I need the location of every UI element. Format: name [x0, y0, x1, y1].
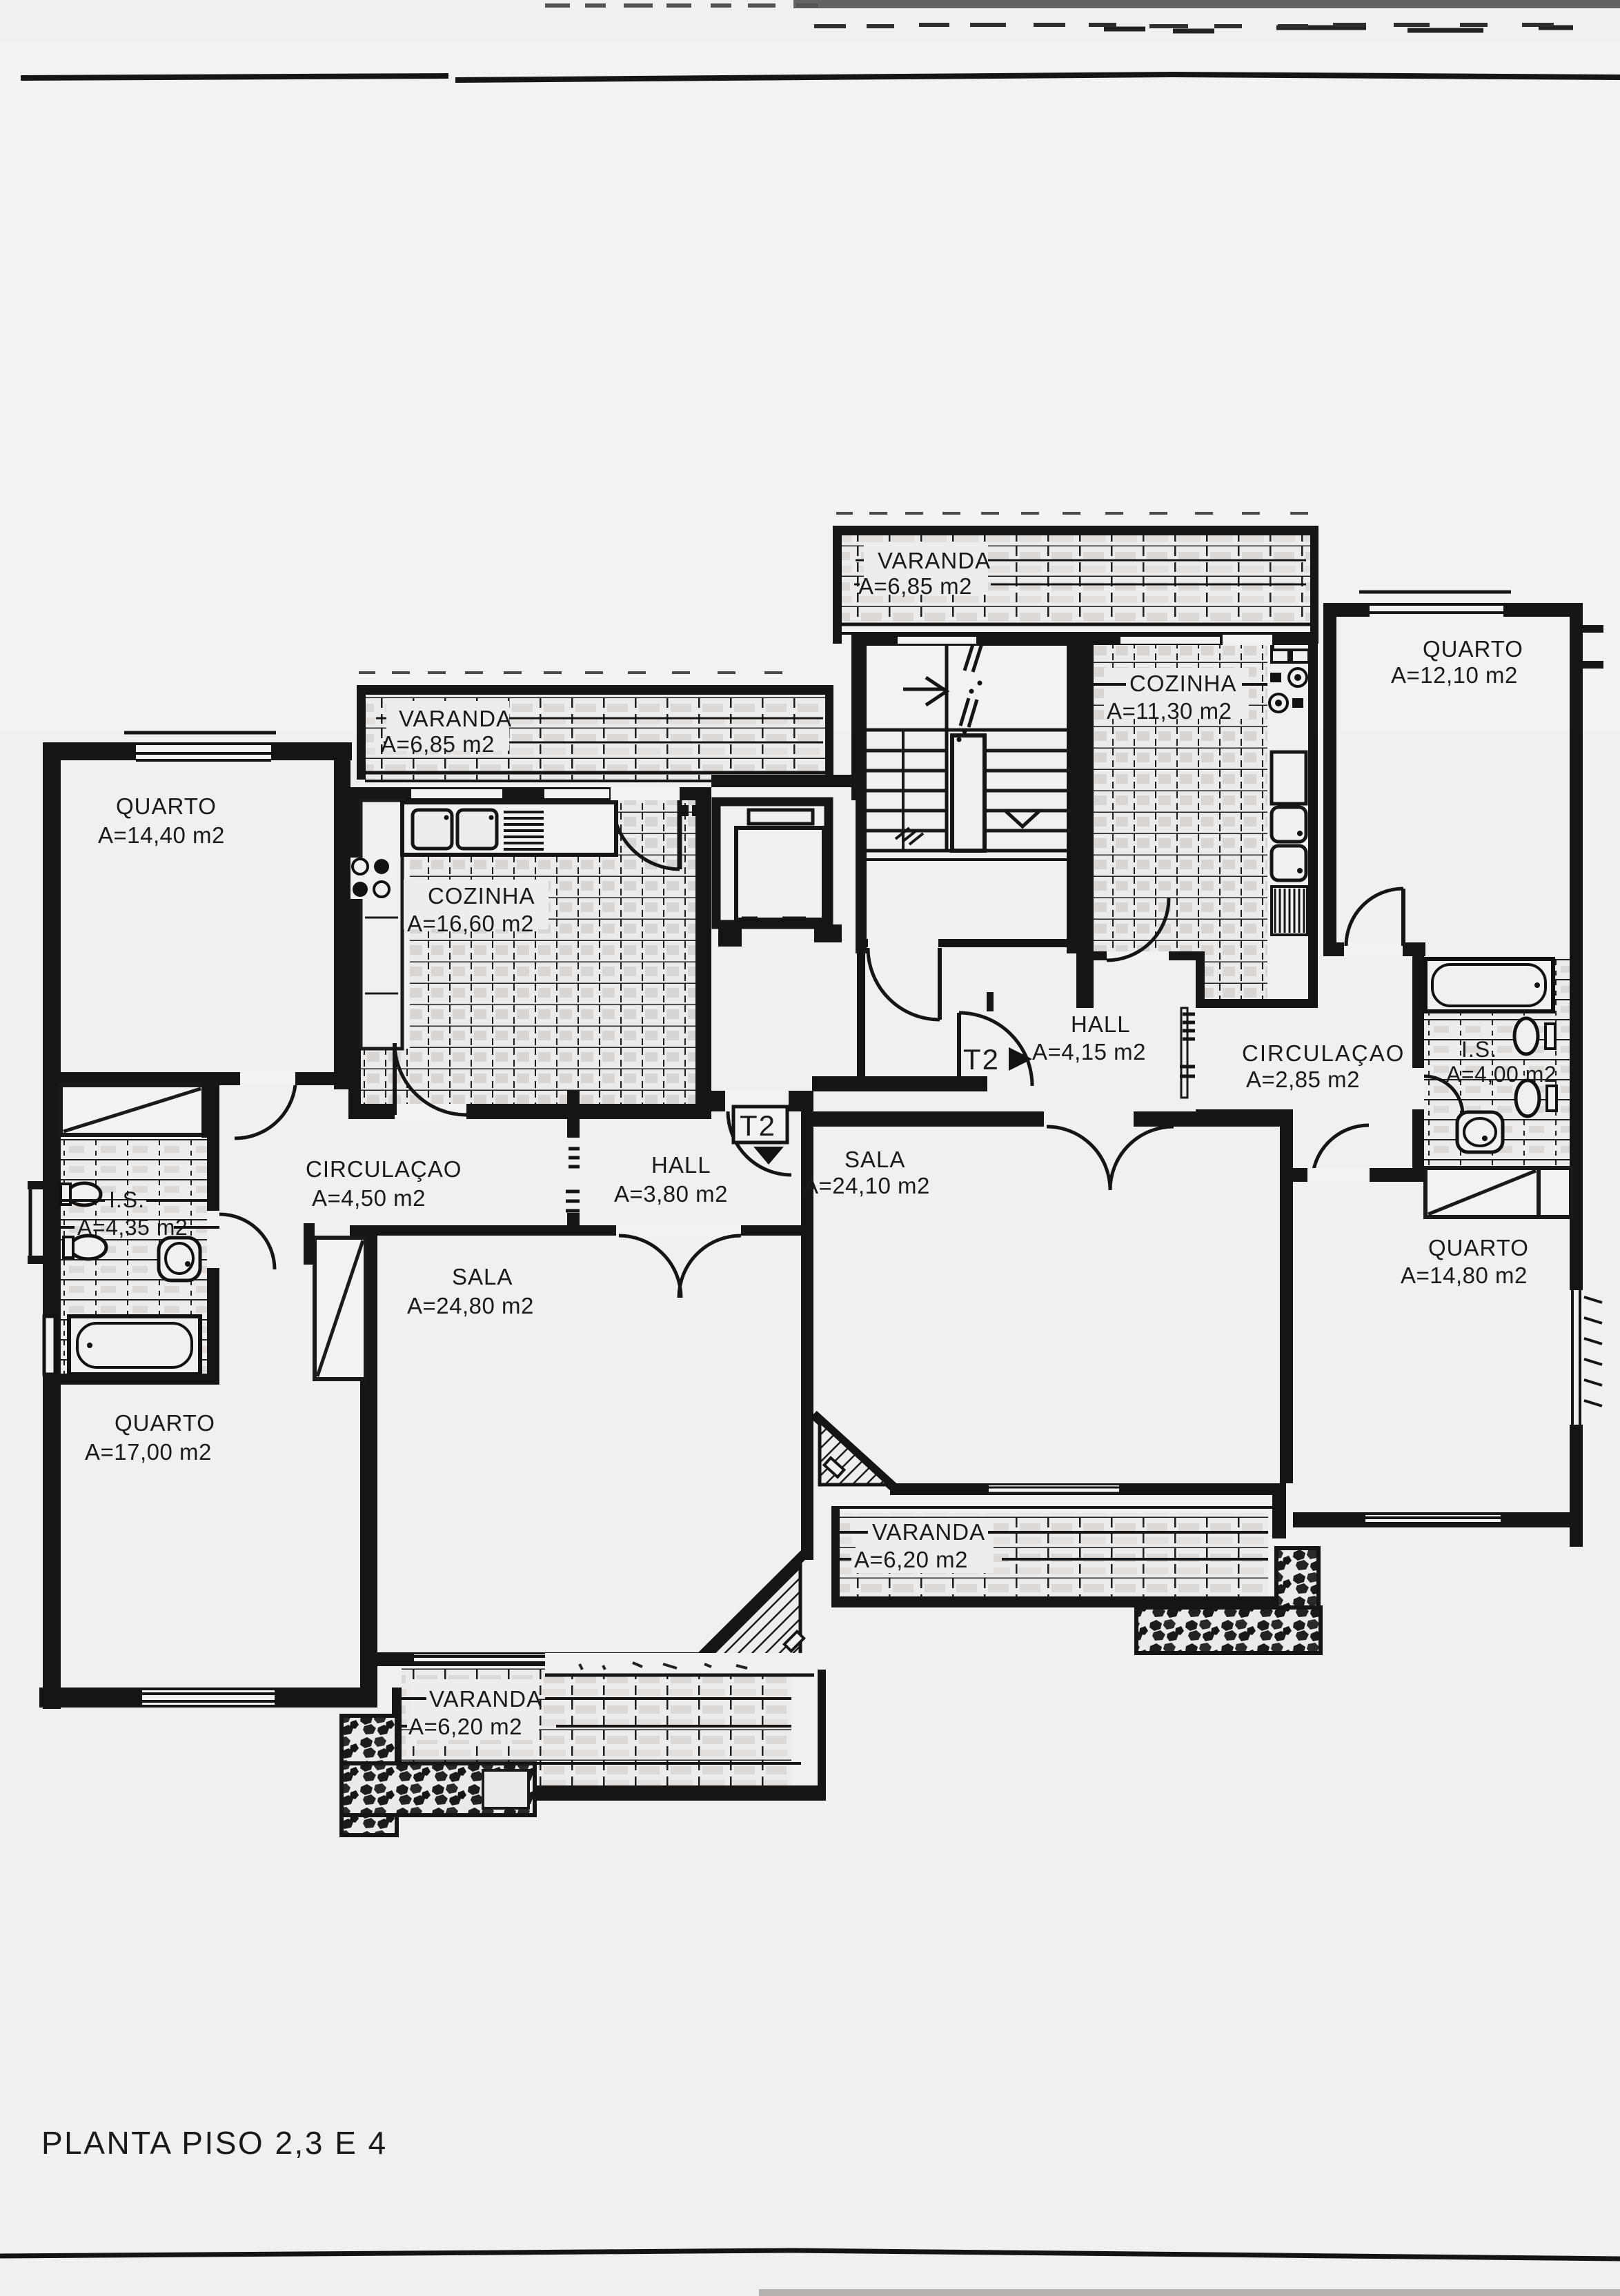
- svg-text:COZINHA: COZINHA: [1129, 671, 1237, 696]
- svg-text:HALL: HALL: [1071, 1011, 1131, 1037]
- svg-text:QUARTO: QUARTO: [115, 1410, 215, 1436]
- svg-text:PLANTA PISO 2,3 E 4: PLANTA PISO 2,3 E 4: [41, 2125, 388, 2161]
- svg-text:A=6,20 m2: A=6,20 m2: [408, 1714, 522, 1739]
- svg-text:VARANDA: VARANDA: [429, 1686, 542, 1712]
- svg-text:I.S.: I.S.: [1461, 1037, 1497, 1062]
- svg-text:CIRCULAÇAO: CIRCULAÇAO: [306, 1156, 462, 1182]
- svg-text:A=6,85 m2: A=6,85 m2: [858, 573, 972, 599]
- svg-text:T2: T2: [740, 1109, 776, 1142]
- svg-text:COZINHA: COZINHA: [428, 883, 535, 909]
- svg-text:VARANDA: VARANDA: [878, 548, 991, 573]
- svg-text:A=17,00 m2: A=17,00 m2: [85, 1439, 212, 1465]
- svg-text:SALA: SALA: [452, 1264, 513, 1289]
- svg-text:A=24,80 m2: A=24,80 m2: [407, 1293, 534, 1318]
- svg-text:A=11,30 m2: A=11,30 m2: [1107, 698, 1232, 724]
- svg-text:SALA: SALA: [844, 1147, 905, 1172]
- svg-text:HALL: HALL: [651, 1152, 711, 1178]
- svg-text:A=24,10 m2: A=24,10 m2: [803, 1173, 930, 1198]
- svg-text:A=4,00 m2: A=4,00 m2: [1446, 1062, 1557, 1087]
- svg-text:A=4,15 m2: A=4,15 m2: [1032, 1039, 1146, 1065]
- svg-text:QUARTO: QUARTO: [1423, 636, 1523, 662]
- svg-text:A=12,10 m2: A=12,10 m2: [1391, 662, 1518, 688]
- svg-text:A=2,85 m2: A=2,85 m2: [1246, 1067, 1360, 1092]
- svg-text:VARANDA: VARANDA: [872, 1519, 985, 1545]
- svg-text:CIRCULAÇAO: CIRCULAÇAO: [1242, 1040, 1405, 1066]
- svg-text:A=3,80 m2: A=3,80 m2: [614, 1181, 728, 1207]
- svg-text:A=4,50 m2: A=4,50 m2: [312, 1185, 426, 1211]
- svg-text:A=4,35 m2: A=4,35 m2: [77, 1215, 188, 1240]
- svg-text:QUARTO: QUARTO: [116, 793, 217, 819]
- svg-text:A=6,85 m2: A=6,85 m2: [381, 731, 495, 757]
- svg-text:T2: T2: [963, 1043, 1000, 1076]
- svg-text:I.S.: I.S.: [109, 1187, 145, 1212]
- svg-text:A=14,80 m2: A=14,80 m2: [1401, 1263, 1528, 1288]
- svg-text:A=16,60 m2: A=16,60 m2: [407, 911, 534, 936]
- svg-text:A=6,20 m2: A=6,20 m2: [854, 1547, 968, 1572]
- svg-text:QUARTO: QUARTO: [1428, 1235, 1529, 1260]
- svg-text:VARANDA: VARANDA: [399, 706, 512, 731]
- svg-text:A=14,40 m2: A=14,40 m2: [98, 822, 225, 848]
